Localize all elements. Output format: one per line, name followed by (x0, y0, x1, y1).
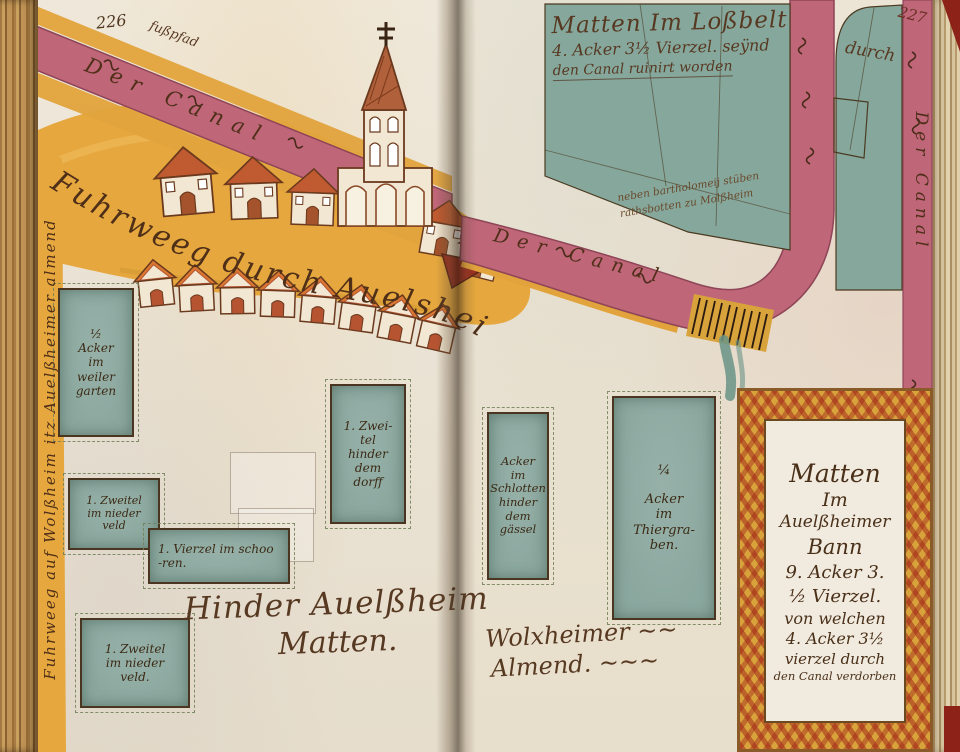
plot-line: 1. Zwei- (344, 419, 393, 433)
cartouche-line: Matten (789, 458, 881, 489)
water-drip (724, 340, 731, 396)
plot-line: Schlotten (490, 482, 546, 496)
plot-line: tel (360, 433, 376, 447)
lossbelt-inscription: Matten Im Loßbelt 4. Acker 3½ Vierzel. s… (551, 7, 789, 81)
plot-line: im nieder (106, 656, 164, 670)
plot-weiler-garten: ½ Acker im weiler garten (58, 288, 134, 437)
plot-line: veld (102, 520, 125, 533)
plot-line: Acker (501, 455, 535, 469)
plot-line: ½ (90, 327, 102, 341)
plot-line: weiler (77, 370, 115, 384)
canal-label-right-edge: Der Canal (911, 97, 931, 267)
plot-line: ¼ (658, 463, 671, 478)
plot-niederveld-b: 1. Zweitel im nieder veld. (80, 618, 190, 708)
wolxheimer-almend-label: Wolxheimer ~~ Almend. ~~~ (485, 615, 680, 683)
cartouche-line: Bann (807, 534, 862, 561)
page-number-left: 226 (95, 10, 127, 32)
plot-line: dem (505, 510, 530, 524)
plot-line: Thiergra- (633, 523, 695, 538)
plot-line: 1. Zweitel (86, 495, 142, 508)
cartouche-line: vierzel durch (785, 650, 885, 669)
plot-line: ben. (650, 538, 679, 553)
cartouche-line: 4. Acker 3½ (786, 629, 884, 650)
plot-hinder-dem-dorff: 1. Zwei- tel hinder dem dorff (330, 384, 406, 524)
plot-line: Acker (78, 341, 114, 355)
plot-line: hinder (348, 447, 388, 461)
wood-board-edge (0, 0, 38, 752)
cartouche-line: den Canal verdorben (774, 669, 897, 684)
plot-line: dorff (353, 475, 382, 489)
plot-line: gässel (500, 523, 537, 537)
manuscript-map-spread: Fuhrweeg durch Auelsheim 226 227 fußpfad… (0, 0, 960, 752)
plot-schlotten-gaessel: Acker im Schlotten hinder dem gässel (487, 412, 549, 580)
plot-line: garten (76, 384, 116, 398)
matten-cartouche-panel: Matten Im Auelßheimer Bann 9. Acker 3. ½… (764, 419, 906, 723)
cartouche-line: 9. Acker 3. (785, 561, 884, 585)
cartouche-line: ½ Vierzel. (789, 585, 881, 608)
plot-line: veld. (120, 670, 149, 684)
plot-niederveld-a: 1. Zweitel im nieder veld (68, 478, 160, 550)
plot-line: im (511, 469, 526, 483)
church (338, 22, 432, 226)
plot-line: dem (355, 461, 381, 475)
plot-schooren: 1. Vierzel im schoo -ren. (148, 528, 290, 584)
plot-line: Acker (645, 492, 683, 507)
plot-thiergruben: ¼ Acker im Thiergra- ben. (612, 396, 716, 620)
plot-line: 1. Vierzel im schoo (158, 542, 274, 556)
plot-line: -ren. (158, 556, 186, 570)
cartouche-line: Im (822, 489, 848, 512)
lossbelt-line1: Matten Im Loßbelt (551, 7, 788, 39)
cartouche-line: Auelßheimer (780, 512, 891, 533)
plot-line: hinder (499, 496, 537, 510)
hinder-auelssheim-label: Hinder Auelßheim Matten. (181, 581, 493, 666)
plot-line: im (88, 355, 103, 369)
plot-line: 1. Zweitel (105, 642, 166, 656)
plot-line: im (656, 507, 673, 522)
road-left-edge-label: Fuhrweeg auf Wolßheim itz Auelßheimer al… (41, 144, 63, 752)
cartouche-line: von welchen (784, 609, 885, 630)
matten-cartouche-frame: Matten Im Auelßheimer Bann 9. Acker 3. ½… (737, 388, 933, 752)
